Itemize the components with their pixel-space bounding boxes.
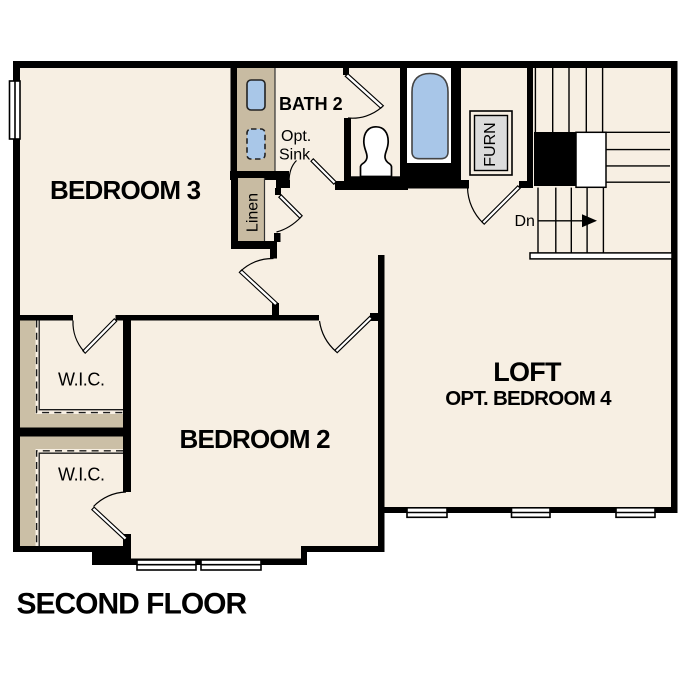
svg-text:W.I.C.: W.I.C. — [58, 370, 105, 390]
svg-text:Linen: Linen — [245, 193, 262, 232]
svg-text:SECOND FLOOR: SECOND FLOOR — [17, 588, 248, 621]
svg-text:Opt.: Opt. — [281, 128, 311, 145]
svg-text:OPT. BEDROOM 4: OPT. BEDROOM 4 — [445, 387, 612, 410]
svg-text:FURN: FURN — [482, 122, 499, 166]
svg-text:W.I.C.: W.I.C. — [58, 465, 105, 485]
svg-text:BEDROOM 2: BEDROOM 2 — [180, 424, 331, 454]
svg-text:LOFT: LOFT — [493, 357, 562, 387]
svg-text:BEDROOM 3: BEDROOM 3 — [50, 175, 201, 205]
svg-text:Sink: Sink — [279, 147, 311, 164]
svg-text:BATH 2: BATH 2 — [279, 94, 343, 114]
svg-text:Dn: Dn — [515, 213, 535, 230]
